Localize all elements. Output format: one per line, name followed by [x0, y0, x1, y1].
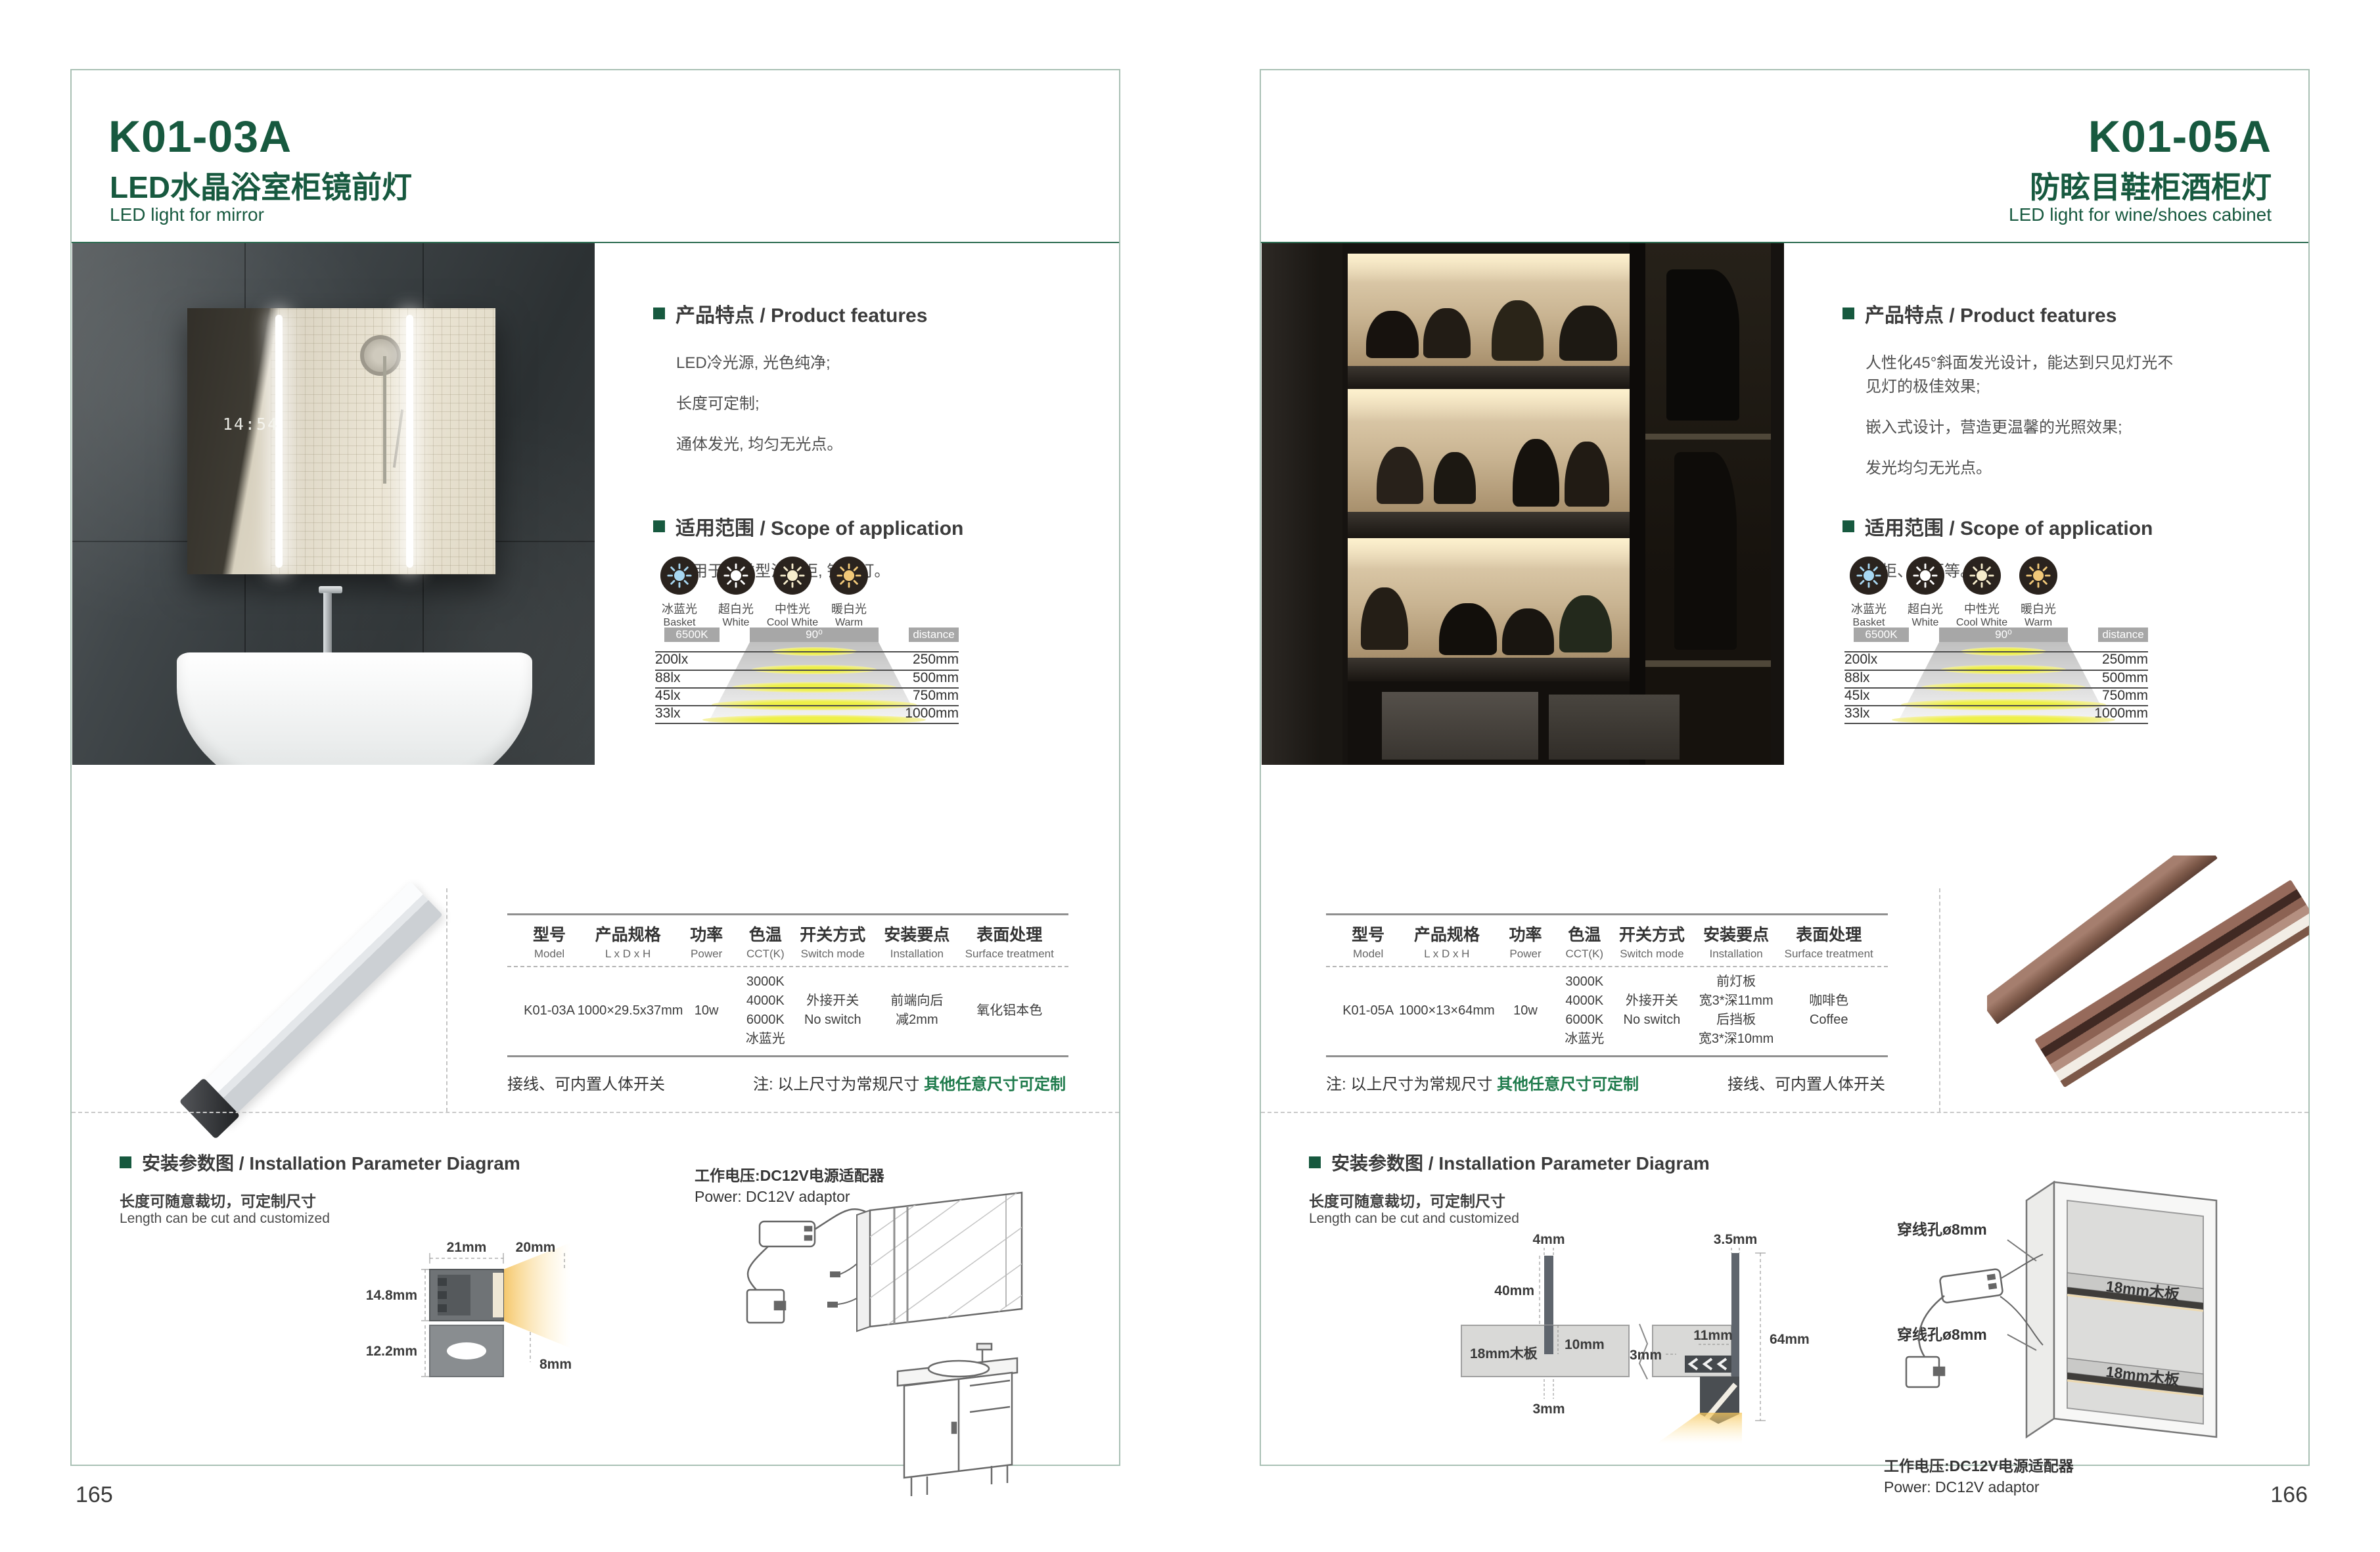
lux-label: 33lx [655, 706, 681, 721]
col-header-zh: 产品规格 [1396, 922, 1498, 946]
features-list: 人性化45°斜面发光设计，能达到只见灯光不见灯的极佳效果; 嵌入式设计，营造更温… [1865, 352, 2184, 497]
feature-item: 长度可定制; [676, 392, 1097, 416]
col-header-en: L x D x H [578, 947, 679, 961]
distance-label: 500mm [2102, 670, 2148, 686]
bulb-icon [773, 557, 812, 595]
section-divider [72, 1112, 1119, 1113]
led-channel-profile [2034, 880, 2309, 1088]
cell-power: 10w [678, 1001, 734, 1020]
power-spec-en: Power: DC12V adaptor [695, 1188, 850, 1205]
beam-angle-badge: 90⁰ [750, 628, 879, 642]
col-header-en: Model [1340, 947, 1396, 961]
cell-install: 前端向后减2mm [869, 992, 965, 1030]
installation-heading-text: 安装参数图 / Installation Parameter Diagram [142, 1149, 520, 1175]
dim-8mm: 8mm [539, 1357, 572, 1372]
led-strip-right [406, 315, 413, 568]
distance-label: 250mm [913, 652, 959, 668]
features-list: LED冷光源, 光色纯净; 长度可定制; 通体发光, 均匀无光点。 [676, 352, 1097, 474]
cable-hole-label-bottom: 穿线孔ø8mm [1897, 1326, 1987, 1343]
section-bullet [653, 308, 665, 319]
lux-label: 200lx [655, 652, 688, 668]
bulb-icon [830, 557, 868, 595]
dim-14-8mm: 14.8mm [366, 1288, 417, 1303]
light-beam [1657, 1413, 1742, 1444]
spec-table-row: K01-03A 1000×29.5x37mm 10w 3000K4000K 60… [507, 967, 1068, 1055]
light-mode-label-zh: 中性光 [1954, 600, 2010, 617]
spec-table-header: 型号Model 产品规格L x D x H 功率Power 色温CCT(K) 开… [1326, 915, 1888, 967]
connector [827, 1302, 838, 1308]
dim-3mm-side: 3mm [1630, 1348, 1662, 1363]
customization-note: 注: 以上尺寸为常规尺寸 其他任意尺寸可定制 [1326, 1071, 1639, 1094]
scope-heading-text: 适用范围 / Scope of application [1865, 512, 2153, 541]
cabinet-drawing: 18mm木板 18mm木板 [2026, 1182, 2216, 1437]
page-165: K01-03A LED水晶浴室柜镜前灯 LED light for mirror… [70, 69, 1120, 1466]
installation-heading: 安装参数图 / Installation Parameter Diagram [120, 1149, 520, 1175]
dim-21mm: 21mm [447, 1240, 487, 1255]
scope-heading-text: 适用范围 / Scope of application [675, 512, 963, 541]
front-lamp-plate-section [1731, 1253, 1739, 1383]
light-beam [503, 1243, 571, 1348]
distance-badge: distance [909, 628, 959, 642]
col-header-zh: 开关方式 [796, 922, 869, 946]
col-header-zh: 色温 [1553, 922, 1615, 946]
bulb-icon [1850, 557, 1888, 595]
feature-item: 人性化45°斜面发光设计，能达到只见灯光不见灯的极佳效果; [1865, 352, 2184, 399]
bulb-icon [1963, 557, 2001, 595]
power-spec-zh: 工作电压:DC12V电源适配器 [1884, 1457, 2074, 1474]
power-adaptor [1940, 1269, 2003, 1303]
col-header-en: CCT(K) [1553, 947, 1615, 961]
spec-table: 型号Model 产品规格L x D x H 功率Power 色温CCT(K) 开… [507, 913, 1068, 1057]
installation-heading: 安装参数图 / Installation Parameter Diagram [1309, 1149, 1710, 1175]
light-mode-label-zh: 中性光 [764, 600, 821, 617]
feature-item: 嵌入式设计，营造更温馨的光照效果; [1865, 416, 2184, 440]
cabinet-wiring-illustration: 18mm木板 18mm木板 穿线孔ø8mm 穿线孔ø8mm 工作 [1879, 1174, 2306, 1503]
cct-badge: 6500K [664, 628, 720, 642]
cabinet-side-panel [1262, 243, 1342, 765]
bulb-icon [2019, 557, 2057, 595]
distance-label: 1000mm [2094, 706, 2148, 721]
boot-shelf [1645, 660, 1771, 667]
chart-line [655, 723, 959, 724]
mirror-clock: 14:54 [223, 415, 279, 434]
dim-4mm: 4mm [1532, 1232, 1565, 1247]
feature-item: LED冷光源, 光色纯净; [676, 352, 1097, 375]
col-header-en: Power [1498, 947, 1554, 961]
cell-size: 1000×29.5x37mm [578, 1001, 679, 1020]
boot-shelf [1645, 434, 1771, 440]
cct-badge: 6500K [1854, 628, 1909, 642]
distance-label: 750mm [913, 688, 959, 704]
page-number: 165 [76, 1482, 113, 1508]
product-title-en: LED light for wine/shoes cabinet [2009, 204, 2272, 225]
cell-model: K01-03A [521, 1001, 577, 1020]
col-header-zh: 功率 [1498, 922, 1554, 946]
cell-size: 1000×13×64mm [1396, 1001, 1498, 1020]
product-render-coffee-profile [1987, 856, 2309, 1171]
col-header-en: Model [521, 947, 577, 961]
shelf-board [1348, 366, 1630, 390]
beam-angle-badge: 90⁰ [1939, 628, 2068, 642]
distance-badge: distance [2098, 628, 2148, 642]
light-mode-label-zh: 超白光 [708, 600, 764, 617]
wiring-note: 接线、可内置人体开关 [507, 1071, 665, 1094]
distance-label: 250mm [2102, 652, 2148, 668]
lux-label: 45lx [655, 688, 681, 704]
col-header-zh: 表面处理 [1784, 922, 1874, 946]
dim-64mm: 64mm [1770, 1332, 1810, 1347]
section-bullet [653, 520, 665, 532]
vanity-drawing [898, 1344, 1017, 1496]
boot [1666, 269, 1739, 421]
dim-40mm: 40mm [1494, 1283, 1534, 1298]
dim-3mm-bottom: 3mm [1532, 1402, 1565, 1417]
vertical-divider [1939, 888, 1940, 1112]
mirror-cabinet-drawing [847, 1174, 1057, 1361]
cell-cct: 3000K4000K 6000K冰蓝光 [735, 972, 796, 1049]
note-text-green: 其他任意尺寸可定制 [1497, 1076, 1639, 1093]
bulb-icon [660, 557, 698, 595]
power-spec-zh: 工作电压:DC12V电源适配器 [695, 1167, 885, 1184]
product-model: K01-05A [2088, 111, 2272, 162]
product-title-en: LED light for mirror [110, 204, 264, 225]
product-render-aluminium-profile [111, 846, 479, 1154]
col-header-zh: 产品规格 [578, 922, 679, 946]
col-header-en: Installation [1688, 947, 1783, 961]
chart-line [1844, 723, 2148, 724]
dim-12-2mm: 12.2mm [366, 1344, 417, 1359]
light-mode-label-zh: 冰蓝光 [1841, 600, 1897, 617]
cell-switch: 外接开关No switch [796, 992, 869, 1030]
cell-switch: 外接开关No switch [1615, 992, 1688, 1030]
col-header-en: Power [678, 947, 734, 961]
shower-pipe-reflection [383, 356, 386, 484]
connector [830, 1271, 840, 1277]
product-photo-shoe-cabinet [1262, 243, 1784, 765]
distance-label: 750mm [2102, 688, 2148, 704]
col-header-zh: 色温 [735, 922, 796, 946]
cable-hole-label-top: 穿线孔ø8mm [1897, 1221, 1987, 1238]
product-model: K01-03A [108, 111, 292, 162]
section-bullet [1842, 308, 1854, 319]
col-header-en: Switch mode [1615, 947, 1688, 961]
cell-surface: 咖啡色Coffee [1784, 992, 1874, 1030]
feature-item: 发光均匀无光点。 [1865, 457, 2184, 480]
note-text: 注: 以上尺寸为常规尺寸 [753, 1076, 924, 1093]
col-header-en: Surface treatment [965, 947, 1055, 961]
light-mode-label-zh: 超白光 [1897, 600, 1954, 617]
power-spec-en: Power: DC12V adaptor [1884, 1478, 2040, 1495]
col-header-zh: 功率 [678, 922, 734, 946]
section-bullet [1309, 1156, 1321, 1168]
catalog-spread: K01-03A LED水晶浴室柜镜前灯 LED light for mirror… [0, 0, 2380, 1552]
cut-note-en: Length can be cut and customized [120, 1211, 330, 1227]
wiring-illustration: 工作电压:DC12V电源适配器 Power: DC12V adaptor [683, 1161, 1116, 1503]
light-mode-label-zh: 暖白光 [2010, 600, 2067, 617]
col-header-en: CCT(K) [735, 947, 796, 961]
col-header-zh: 型号 [1340, 922, 1396, 946]
cell-cct: 3000K4000K 6000K冰蓝光 [1553, 972, 1615, 1049]
col-header-en: Switch mode [796, 947, 869, 961]
lux-label: 33lx [1844, 706, 1870, 721]
storage-box [1549, 695, 1680, 760]
scope-heading: 适用范围 / Scope of application [653, 512, 963, 541]
customization-note: 注: 以上尺寸为常规尺寸 其他任意尺寸可定制 [753, 1071, 1066, 1094]
product-title-zh: 防眩目鞋柜酒柜灯 [2030, 164, 2272, 207]
vertical-divider [446, 888, 447, 1112]
dim-11mm: 11mm [1693, 1328, 1733, 1343]
wash-basin [177, 652, 532, 765]
lux-label: 88lx [655, 670, 681, 686]
light-mode-label-zh: 冰蓝光 [651, 600, 708, 617]
section-bullet [120, 1156, 131, 1168]
features-heading: 产品特点 / Product features [653, 299, 927, 328]
bracket-slot [447, 1342, 486, 1359]
distance-label: 1000mm [905, 706, 959, 721]
features-heading-text: 产品特点 / Product features [675, 299, 927, 328]
cell-model: K01-05A [1340, 1001, 1396, 1020]
spec-table-header: 型号Model 产品规格L x D x H 功率Power 色温CCT(K) 开… [507, 915, 1068, 967]
col-header-en: Installation [869, 947, 965, 961]
spec-table: 型号Model 产品规格L x D x H 功率Power 色温CCT(K) 开… [1326, 913, 1888, 1057]
shower-head-reflection [360, 335, 401, 376]
bulb-icon [717, 557, 755, 595]
diffuser [493, 1273, 503, 1317]
page-number: 166 [2270, 1482, 2308, 1508]
light-mode-label-zh: 暖白光 [821, 600, 877, 617]
section-bullet [1842, 520, 1854, 532]
board-label: 18mm木板 [1470, 1346, 1538, 1361]
rear-baffle [1544, 1256, 1553, 1325]
power-adaptor [760, 1221, 815, 1246]
lux-label: 88lx [1844, 670, 1870, 686]
beam-distance-chart: 6500K 90⁰ distance 200lx 88lx 45lx 33lx … [1844, 628, 2148, 727]
col-header-zh: 表面处理 [965, 922, 1055, 946]
baffle-slot [1544, 1325, 1553, 1354]
shelf-cross-section-diagram: 4mm 40mm 18mm木板 10mm 3mm 3.5mm 11mm 3mm [1353, 1227, 1813, 1476]
wiring-note: 接线、可内置人体开关 [1728, 1071, 1885, 1094]
lux-label: 45lx [1844, 688, 1870, 704]
installation-heading-text: 安装参数图 / Installation Parameter Diagram [1331, 1149, 1710, 1175]
bulb-icon [1906, 557, 1944, 595]
cell-power: 10w [1498, 1001, 1554, 1020]
cell-install: 前灯板宽3*深11mm 后挡板宽3*深10mm [1688, 972, 1783, 1049]
page-166: K01-05A 防眩目鞋柜酒柜灯 LED light for wine/shoe… [1260, 69, 2310, 1466]
cabinet-divider [1630, 243, 1645, 765]
storage-box [1382, 692, 1539, 760]
product-title-zh: LED水晶浴室柜镜前灯 [110, 164, 412, 207]
note-text: 注: 以上尺寸为常规尺寸 [1326, 1076, 1497, 1093]
features-heading-text: 产品特点 / Product features [1865, 299, 2117, 328]
col-header-en: L x D x H [1396, 947, 1498, 961]
beam-distance-chart: 6500K 90⁰ distance 200lx 88lx 45lx 33lx … [655, 628, 959, 727]
product-photo-mirror-light: 14:54 [72, 243, 595, 765]
boot [1674, 452, 1737, 650]
col-header-en: Surface treatment [1784, 947, 1874, 961]
cell-surface: 氧化铝本色 [965, 1001, 1055, 1020]
shelf-board [1348, 658, 1630, 681]
col-header-zh: 安装要点 [1688, 922, 1783, 946]
cut-note-zh: 长度可随意裁切，可定制尺寸 [1309, 1189, 1505, 1211]
wall-socket [747, 1290, 785, 1323]
shelf-board [1348, 512, 1630, 538]
feature-item: 通体发光, 均匀无光点。 [676, 433, 1097, 457]
spec-table-row: K01-05A 1000×13×64mm 10w 3000K4000K 6000… [1326, 967, 1888, 1055]
profile-cross-section-diagram: 21mm 20mm 14.8mm 12.2mm 8mm [354, 1233, 643, 1470]
led-profile-bar [193, 882, 443, 1125]
features-heading: 产品特点 / Product features [1842, 299, 2117, 328]
col-header-zh: 型号 [521, 922, 577, 946]
led-strip-left [275, 315, 283, 568]
cut-note-zh: 长度可随意裁切，可定制尺寸 [120, 1189, 316, 1211]
scope-heading: 适用范围 / Scope of application [1842, 512, 2153, 541]
col-header-zh: 开关方式 [1615, 922, 1688, 946]
cut-note-en: Length can be cut and customized [1309, 1211, 1519, 1227]
dim-20mm: 20mm [516, 1240, 556, 1255]
col-header-zh: 安装要点 [869, 922, 965, 946]
dim-3-5mm: 3.5mm [1714, 1232, 1758, 1247]
power-cable [748, 1246, 768, 1290]
distance-label: 500mm [913, 670, 959, 686]
note-text-green: 其他任意尺寸可定制 [924, 1076, 1066, 1093]
faucet-stem [323, 593, 332, 658]
dim-10mm: 10mm [1565, 1337, 1605, 1352]
wall-socket [1906, 1357, 1944, 1387]
lux-label: 200lx [1844, 652, 1877, 668]
led-mirror: 14:54 [187, 308, 495, 574]
